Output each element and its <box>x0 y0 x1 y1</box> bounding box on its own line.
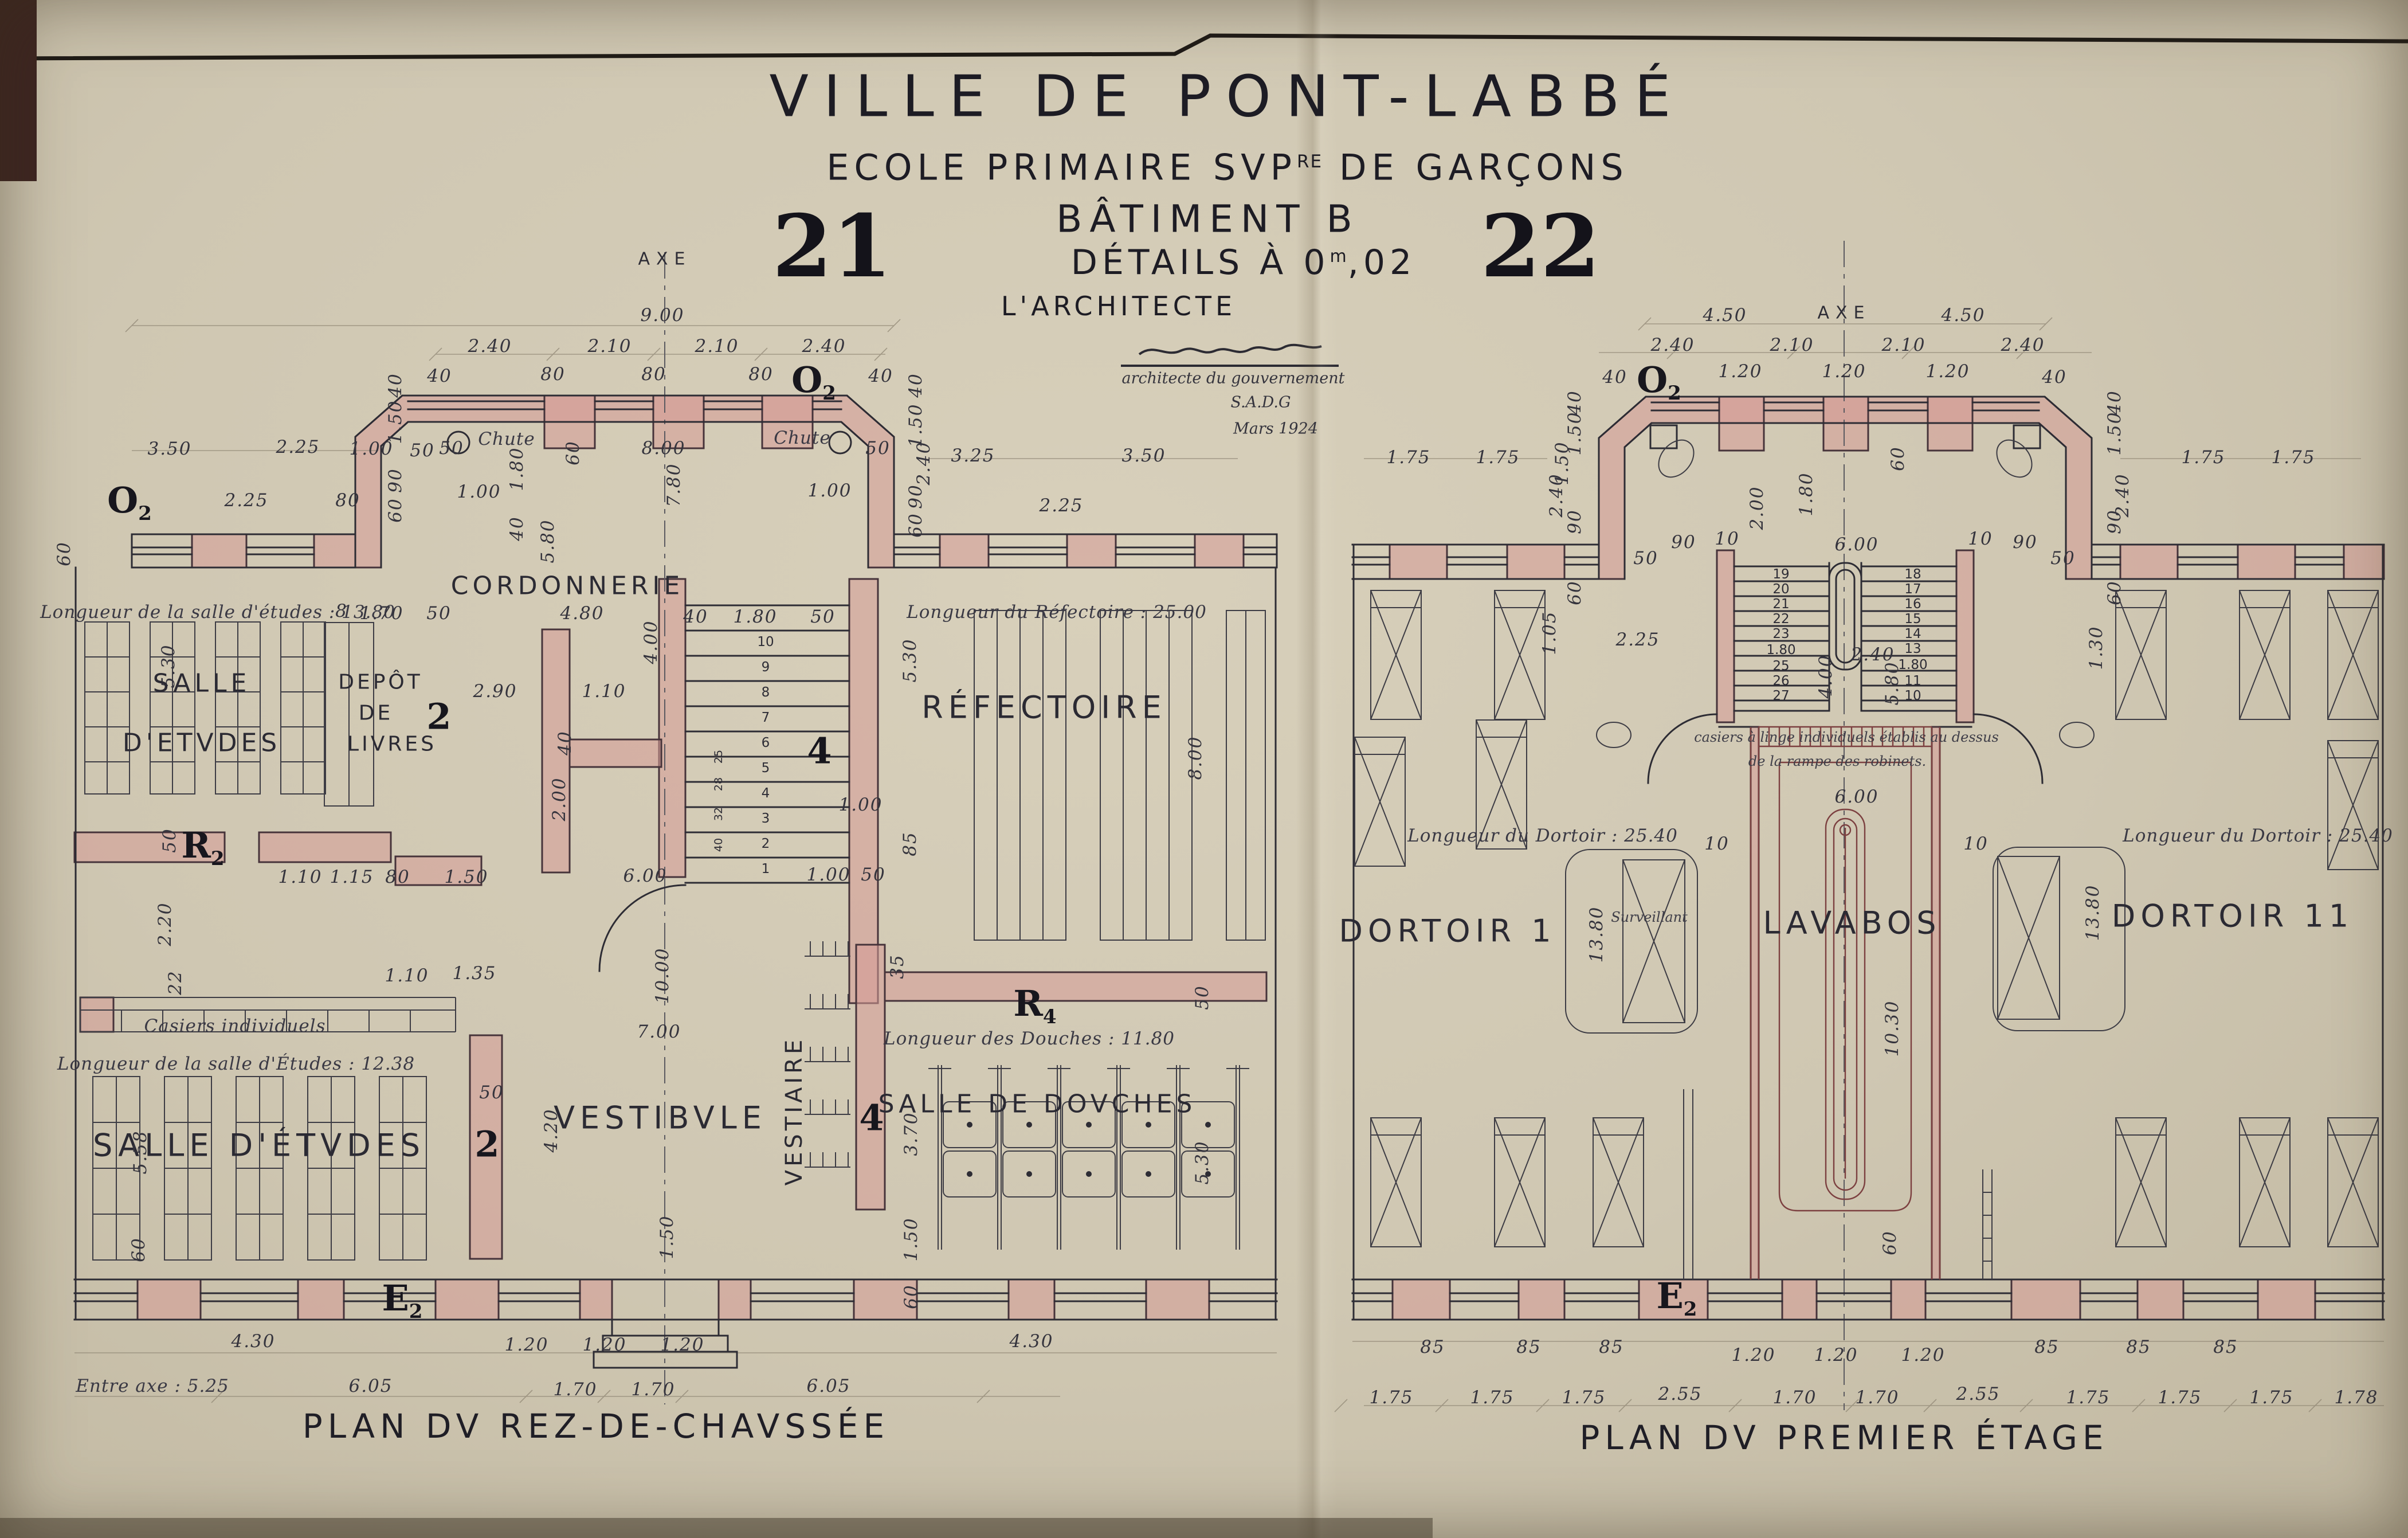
label-10-00: 10.00 <box>652 948 673 1004</box>
label-40: 40 <box>1602 367 1627 388</box>
label-1-20: 1.20 <box>1901 1345 1945 1365</box>
label-1-70: 1.70 <box>631 1379 675 1400</box>
label-5-58: 5.58 <box>130 1130 151 1174</box>
label-1-00: 1.00 <box>807 480 852 501</box>
marker-o2-left-wall: O2 <box>107 479 152 525</box>
label-40: 40 <box>555 730 575 755</box>
label-2-10: 2.10 <box>1881 335 1925 355</box>
label-2-40: 2.40 <box>802 336 846 357</box>
label-1-50: 1.50 <box>901 1217 921 1261</box>
label-longueur-de-la-salle-d-tudes: Longueur de la salle d'Études : 12.38 <box>57 1054 415 1074</box>
room-salle-etudes-1: SALLE <box>153 669 251 698</box>
label-85: 85 <box>2126 1337 2151 1357</box>
label-1-50: 1.50 <box>385 400 406 444</box>
label-1-75: 1.75 <box>2158 1387 2202 1408</box>
label-2-40: 2.40 <box>1546 473 1567 517</box>
label-90: 90 <box>2104 509 2125 534</box>
label-2-25: 2.25 <box>1039 495 1083 516</box>
label-50: 50 <box>410 440 434 461</box>
label-32: 32 <box>712 807 725 821</box>
label-28: 28 <box>712 777 725 791</box>
label-85: 85 <box>1599 1337 1623 1357</box>
label-2-55: 2.55 <box>1658 1384 1702 1404</box>
axis-label-left: AXE <box>638 249 691 269</box>
blueprint-sheet: VILLE DE PONT-LABBÉ ECOLE PRIMAIRE SVPRE… <box>0 0 2408 1538</box>
label-25: 25 <box>1772 659 1789 674</box>
label-85: 85 <box>1516 1337 1541 1357</box>
label-8: 8 <box>762 685 770 700</box>
label-13-80: 13.80 <box>2083 885 2103 941</box>
label-8-00: 8.00 <box>641 438 685 459</box>
label-60: 60 <box>1880 1230 1900 1255</box>
label-85: 85 <box>900 831 920 856</box>
room-vestiaire: VESTIAIRE <box>781 1036 807 1185</box>
label-1: 1 <box>762 862 770 876</box>
label-1-50: 1.50 <box>2104 411 2125 455</box>
label-casiers-linge-individuels-ta: casiers à linge individuels établis au d… <box>1694 729 1999 745</box>
label-22: 22 <box>1772 612 1789 627</box>
label-20: 20 <box>1772 582 1789 597</box>
label-1-70: 1.70 <box>553 1379 597 1400</box>
label-14: 14 <box>1904 627 1921 641</box>
marker-e2-left: E2 <box>382 1277 423 1323</box>
marker-o2-left-plan: O2 <box>791 359 836 405</box>
label-2: 2 <box>762 836 770 851</box>
label-90: 90 <box>2013 532 2037 553</box>
label-2-10: 2.10 <box>695 336 739 357</box>
room-vestibule: VESTIBVLE <box>554 1100 767 1136</box>
label-10: 10 <box>1963 833 1988 854</box>
label-80: 80 <box>335 490 360 511</box>
label-1-80: 1.80 <box>1796 472 1817 516</box>
label-1-20: 1.20 <box>582 1335 626 1355</box>
label-80: 80 <box>641 364 666 385</box>
label-40: 40 <box>507 516 527 541</box>
label-2-10: 2.10 <box>587 336 632 357</box>
label-surveillant: Surveillant <box>1611 909 1688 925</box>
label-60: 60 <box>563 440 583 465</box>
label-5-30: 5.30 <box>900 638 920 682</box>
label-1-70: 1.70 <box>1855 1387 1899 1408</box>
label-1-00: 1.00 <box>806 864 850 885</box>
label-21: 21 <box>1772 597 1789 612</box>
label-1-15: 1.15 <box>330 867 374 887</box>
label-1-80: 1.80 <box>1898 658 1927 672</box>
label-8-00: 8.00 <box>1185 735 1206 780</box>
label-1-75: 1.75 <box>1386 447 1430 468</box>
label-40: 40 <box>712 838 725 852</box>
label-6-00: 6.00 <box>623 866 667 886</box>
label-60: 60 <box>905 512 926 537</box>
label-2-25: 2.25 <box>224 490 268 511</box>
label-6-00: 6.00 <box>1834 786 1878 807</box>
label-80: 80 <box>748 364 773 385</box>
label-7-80: 7.80 <box>664 463 684 507</box>
label-10-30: 10.30 <box>1882 1000 1903 1057</box>
label-3: 3 <box>762 811 770 826</box>
label-80: 80 <box>540 364 565 385</box>
label-longueur-du-r-fectoire-25-00: Longueur du Réfectoire : 25.00 <box>907 602 1207 623</box>
label-1-10: 1.10 <box>582 681 626 702</box>
label-1-20: 1.20 <box>1718 361 1762 382</box>
label-3-25: 3.25 <box>951 445 995 466</box>
label-13: 13 <box>1904 641 1921 656</box>
annotation-layer: AXE9.002.402.102.102.404080808040O2O23.5… <box>0 0 2408 1538</box>
label-4-30: 4.30 <box>231 1331 275 1352</box>
label-10: 10 <box>1904 688 1921 703</box>
room-dortoir-11: DORTOIR 11 <box>2112 898 2354 934</box>
label-60: 60 <box>385 498 406 522</box>
label-2-25: 2.25 <box>276 437 320 457</box>
label-2-00: 2.00 <box>549 777 570 821</box>
label-3-70: 3.70 <box>901 1112 921 1156</box>
label-longueur-du-dortoir-25-40: Longueur du Dortoir : 25.40 <box>2123 825 2393 846</box>
label-1-75: 1.75 <box>2181 447 2225 468</box>
label-90: 90 <box>1564 509 1585 534</box>
label-2: 2 <box>474 1124 499 1165</box>
label-50: 50 <box>479 1082 504 1103</box>
label-2-00: 2.00 <box>1747 486 1767 530</box>
label-1-75: 1.75 <box>2249 1387 2293 1408</box>
label-25: 25 <box>712 750 725 764</box>
label-longueur-des-douches-11-80: Longueur des Douches : 11.80 <box>884 1028 1175 1049</box>
label-2-40: 2.40 <box>1650 335 1695 355</box>
label-2-40: 2.40 <box>2001 335 2045 355</box>
label-50: 50 <box>810 606 835 627</box>
label-chute: Chute <box>774 428 830 448</box>
label-16: 16 <box>1904 597 1921 612</box>
label-2-90: 2.90 <box>473 681 517 702</box>
label-10: 10 <box>1715 529 1739 549</box>
label-casiers-individuels: Casiers individuels <box>144 1016 326 1036</box>
label-4-50: 4.50 <box>1703 305 1747 326</box>
marker-r2: R2 <box>181 824 224 870</box>
label-7-00: 7.00 <box>637 1022 681 1042</box>
label-7: 7 <box>762 710 770 725</box>
label-10: 10 <box>757 635 774 649</box>
label-50: 50 <box>1633 548 1658 569</box>
label-90: 90 <box>1671 532 1696 553</box>
label-1-70: 1.70 <box>1772 1387 1817 1408</box>
label-1-20: 1.20 <box>660 1335 704 1355</box>
label-1-05: 1.05 <box>1539 610 1560 655</box>
label-5: 5 <box>762 761 770 776</box>
room-depot-livres: DEPÔT <box>338 671 423 694</box>
marker-r4: R4 <box>1013 983 1056 1028</box>
label-entre-axe-5-25: Entre axe : 5.25 <box>76 1376 229 1396</box>
label-1-50: 1.50 <box>444 867 488 887</box>
label-85: 85 <box>1420 1337 1445 1357</box>
label-50: 50 <box>159 828 180 852</box>
label-3-50: 3.50 <box>147 439 191 459</box>
label-60: 60 <box>901 1284 921 1309</box>
label-1-70: 1.70 <box>359 603 403 624</box>
label-22: 22 <box>165 970 186 995</box>
marker-o2-right-plan: O2 <box>1637 359 1681 405</box>
label-1-78: 1.78 <box>2334 1387 2378 1408</box>
label-1-30: 1.30 <box>2086 625 2107 670</box>
label-60: 60 <box>54 541 74 566</box>
label-26: 26 <box>1772 674 1789 688</box>
label-50: 50 <box>861 864 885 885</box>
label-1-80: 1.80 <box>733 606 777 627</box>
label-10: 10 <box>1704 833 1729 854</box>
label-50: 50 <box>1192 985 1213 1009</box>
label-90: 90 <box>905 484 926 508</box>
label-4-80: 4.80 <box>560 603 604 624</box>
label-40: 40 <box>683 606 708 627</box>
label-23: 23 <box>1772 627 1789 641</box>
label-6: 6 <box>762 735 770 750</box>
label-1-75: 1.75 <box>1562 1387 1606 1408</box>
label-1-75: 1.75 <box>2066 1387 2110 1408</box>
label-50: 50 <box>865 438 890 459</box>
label-60: 60 <box>1888 446 1908 471</box>
label-50: 50 <box>439 438 464 459</box>
label-de: DE <box>359 702 393 725</box>
label-1-75: 1.75 <box>1369 1387 1413 1408</box>
label-2-20: 2.20 <box>155 902 175 946</box>
label-2-10: 2.10 <box>1770 335 1814 355</box>
label-1-20: 1.20 <box>1925 361 1970 382</box>
label-27: 27 <box>1772 688 1789 703</box>
room-refectoire: RÉFECTOIRE <box>921 690 1167 726</box>
label-1-35: 1.35 <box>452 963 496 984</box>
label-2-40: 2.40 <box>468 336 512 357</box>
label-40: 40 <box>905 373 926 397</box>
label-11: 11 <box>1904 674 1921 688</box>
label-livres: LIVRES <box>347 733 437 756</box>
label-1-10: 1.10 <box>278 867 322 887</box>
label-1-00: 1.00 <box>457 482 501 502</box>
axis-label-right: AXE <box>1817 303 1870 323</box>
label-5-80: 5.80 <box>538 519 558 563</box>
label-50: 50 <box>2050 548 2075 569</box>
label-15: 15 <box>1904 612 1921 627</box>
label-1-75: 1.75 <box>1470 1387 1514 1408</box>
room-cordonnerie: CORDONNERIE <box>451 572 684 601</box>
label-40: 40 <box>385 373 406 397</box>
label-1-20: 1.20 <box>1822 361 1866 382</box>
label-4-00: 4.00 <box>1815 654 1836 698</box>
label-6-05: 6.05 <box>806 1376 850 1396</box>
label-longueur-du-dortoir-25-40: Longueur du Dortoir : 25.40 <box>1407 825 1678 846</box>
label-5-30: 5.30 <box>1192 1140 1213 1184</box>
label-85: 85 <box>2034 1337 2059 1357</box>
label-10: 10 <box>1968 529 1993 549</box>
label-13-80: 13.80 <box>1586 906 1607 963</box>
label-60: 60 <box>1564 580 1585 605</box>
label-1-20: 1.20 <box>504 1335 548 1355</box>
label-19: 19 <box>1772 567 1789 582</box>
label-60: 60 <box>128 1237 149 1262</box>
label-1-80: 1.80 <box>1766 643 1795 658</box>
label-50: 50 <box>426 603 451 624</box>
label-d-etvdes: D'ETVDES <box>123 729 281 758</box>
label-1-75: 1.75 <box>2271 447 2315 468</box>
label-1-20: 1.20 <box>1731 1345 1775 1365</box>
marker-e2-right: E2 <box>1657 1275 1697 1321</box>
label-8: 8 <box>335 601 348 621</box>
room-dortoir-1: DORTOIR 1 <box>1339 913 1556 949</box>
label-60: 60 <box>2104 580 2125 605</box>
label-2-40: 2.40 <box>913 441 934 485</box>
marker-detail-4: 4 <box>807 730 832 772</box>
label-9-00: 9.00 <box>640 305 684 326</box>
label-1-10: 1.10 <box>385 965 429 986</box>
label-2-25: 2.25 <box>1615 629 1660 650</box>
label-40: 40 <box>2042 367 2066 388</box>
label-2-55: 2.55 <box>1956 1384 2000 1404</box>
label-de-la-rampe-des-robinets: de la rampe des robinets. <box>1748 753 1926 769</box>
label-80: 80 <box>385 867 410 887</box>
label-1-75: 1.75 <box>1476 447 1520 468</box>
label-40: 40 <box>427 366 452 386</box>
label-3-50: 3.50 <box>1121 445 1166 466</box>
label-40: 40 <box>868 366 893 386</box>
label-17: 17 <box>1904 582 1921 597</box>
label-4: 4 <box>762 786 770 801</box>
label-1-00: 1.00 <box>838 795 883 815</box>
label-85: 85 <box>2213 1337 2238 1357</box>
label-9: 9 <box>762 660 770 675</box>
label-18: 18 <box>1904 567 1921 582</box>
label-4-00: 4.00 <box>641 620 661 664</box>
label-90: 90 <box>385 468 406 492</box>
label-1-50: 1.50 <box>657 1215 677 1259</box>
label-1-20: 1.20 <box>1814 1345 1858 1365</box>
label-4-50: 4.50 <box>1941 305 1985 326</box>
marker-detail-2: 2 <box>426 696 451 738</box>
label-6-00: 6.00 <box>1834 534 1878 555</box>
room-lavabos: LAVABOS <box>1763 905 1941 941</box>
room-salle-douches: SALLE DE DOVCHES <box>879 1090 1197 1119</box>
label-6-05: 6.05 <box>348 1376 393 1396</box>
label-1-80: 1.80 <box>507 447 527 491</box>
label-35: 35 <box>887 954 908 979</box>
label-4-30: 4.30 <box>1009 1331 1053 1352</box>
